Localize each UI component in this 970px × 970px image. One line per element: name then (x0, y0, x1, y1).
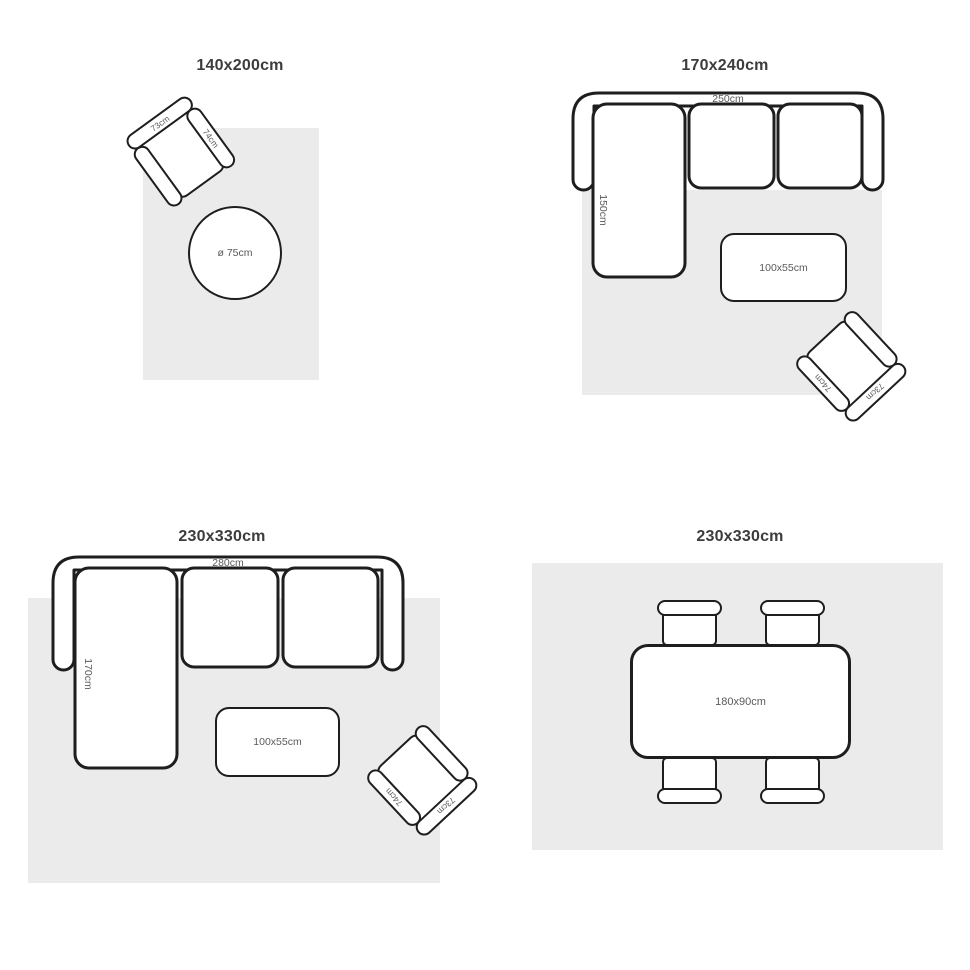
sofa-depth-dimension: 170cm (82, 658, 94, 690)
sofa-width-dimension: 280cm (212, 557, 244, 569)
sofa-cushion (689, 104, 774, 188)
sofa-width-dimension: 250cm (712, 93, 744, 105)
coffee-table-dimension: 100x55cm (759, 262, 807, 274)
panel1-title: 140x200cm (130, 57, 350, 75)
dining-chair (657, 757, 722, 804)
round-table: ø 75cm (188, 206, 282, 300)
sofa-cushion (778, 104, 862, 188)
sofa-depth-dimension: 150cm (597, 194, 609, 226)
dining-chair (657, 600, 722, 646)
dining-chair-backrest (657, 788, 722, 804)
dining-table: 180x90cm (630, 644, 851, 759)
panel2-title: 170x240cm (615, 57, 835, 75)
sofa-chaise (593, 104, 685, 277)
coffee-table: 100x55cm (720, 233, 847, 302)
dining-chair-backrest (760, 788, 825, 804)
dining-table-dimension: 180x90cm (715, 696, 766, 708)
coffee-table-dimension: 100x55cm (253, 736, 301, 748)
round-table-dimension: ø 75cm (217, 247, 252, 259)
panel3-title: 230x330cm (112, 528, 332, 546)
sofa-cushion (182, 568, 278, 667)
dining-chair (760, 600, 825, 646)
sofa-cushion (283, 568, 378, 667)
dining-chair-backrest (760, 600, 825, 616)
coffee-table: 100x55cm (215, 707, 340, 777)
dining-chair (760, 757, 825, 804)
panel4-title: 230x330cm (630, 528, 850, 546)
dining-chair-backrest (657, 600, 722, 616)
rug-size-guide: 140x200cm 74cm 73cm ø 75cm 170x240cm 250… (0, 0, 970, 970)
